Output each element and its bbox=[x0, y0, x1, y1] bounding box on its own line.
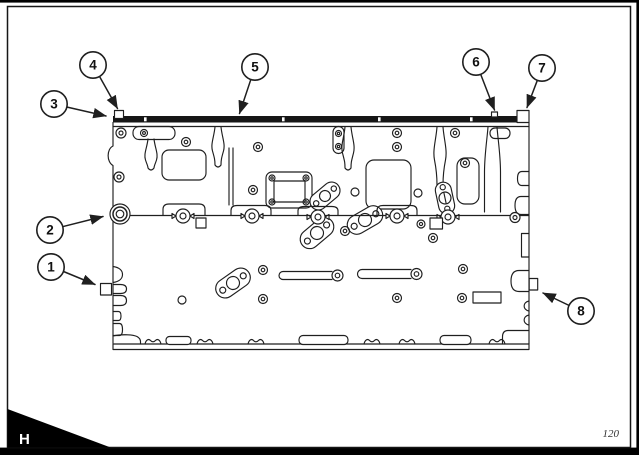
scan-edge-top bbox=[0, 0, 639, 3]
cover-flange bbox=[266, 172, 312, 208]
deck-fitting-right bbox=[517, 111, 529, 123]
callout-3-label: 3 bbox=[50, 97, 58, 112]
callout-6-label: 6 bbox=[472, 55, 480, 70]
section-tab-label: H bbox=[19, 431, 30, 448]
callout-1-label: 1 bbox=[47, 260, 55, 275]
callout-7-label: 7 bbox=[538, 61, 546, 76]
callout-2-label: 2 bbox=[46, 223, 54, 238]
callout-8-label: 8 bbox=[577, 304, 585, 319]
pad-square bbox=[196, 218, 206, 228]
pad-square bbox=[430, 218, 443, 229]
left-fitting-item1 bbox=[101, 284, 112, 296]
scanned-manual-page: H 120 bbox=[0, 0, 639, 455]
deck-fitting-mid bbox=[492, 112, 498, 117]
deck-fitting-left bbox=[115, 111, 124, 119]
right-fitting-item8 bbox=[529, 279, 538, 291]
callout-4-label: 4 bbox=[89, 58, 97, 73]
parts-diagram: H 120 bbox=[0, 0, 639, 455]
gallery-plug-item2 bbox=[110, 204, 130, 224]
callout-5-label: 5 bbox=[251, 60, 259, 75]
page-number: 120 bbox=[603, 428, 620, 440]
scan-edge-bottom bbox=[0, 448, 639, 455]
